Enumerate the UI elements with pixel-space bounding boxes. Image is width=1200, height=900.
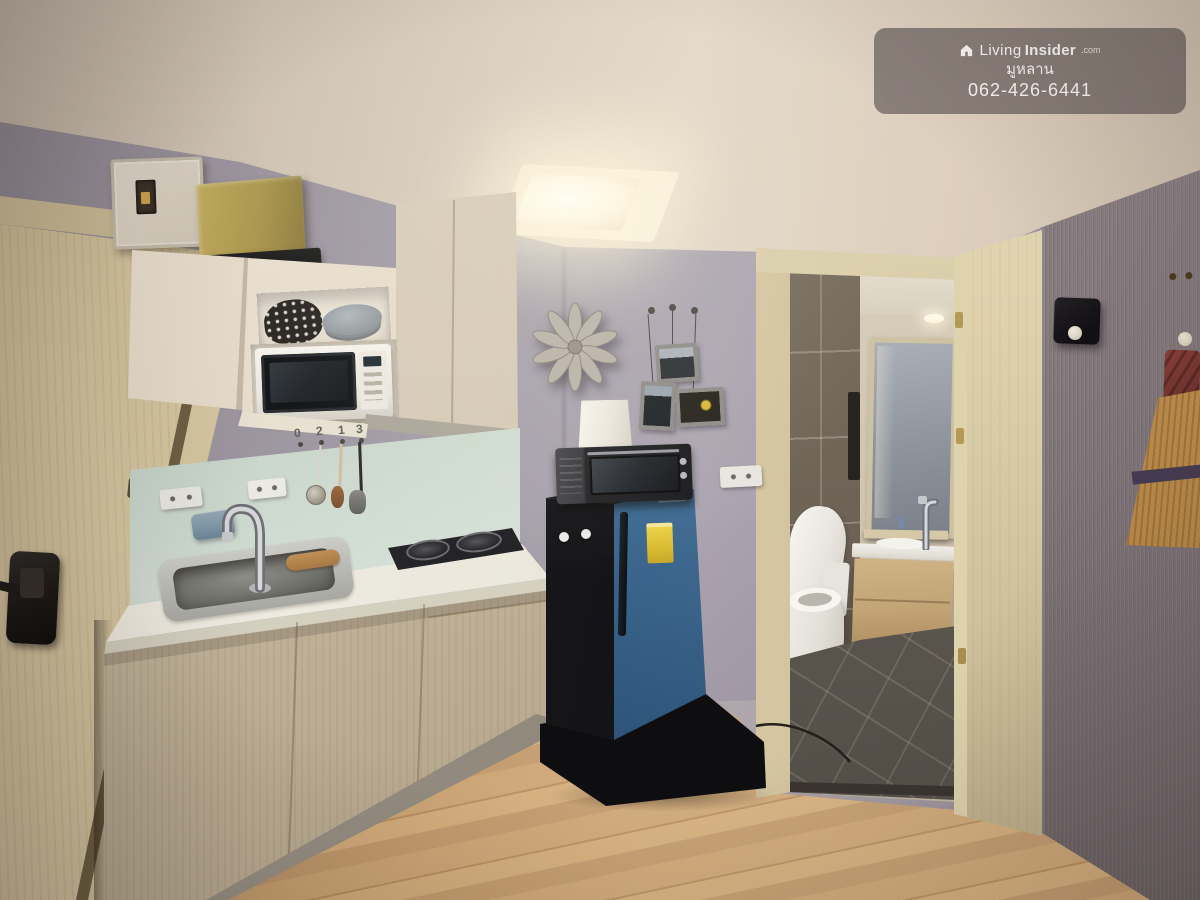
electrical-panel-indicator xyxy=(141,192,150,204)
vanity-sink xyxy=(876,537,926,550)
door-latch xyxy=(127,478,138,499)
toaster-oven xyxy=(555,444,693,505)
door-hinge-top xyxy=(955,312,963,328)
upper-cabinet-door-seam xyxy=(451,200,455,434)
frame-hook xyxy=(691,307,698,314)
room-photo: 0 2 1 3 xyxy=(0,0,1200,900)
fridge-floor-shadow xyxy=(548,778,778,812)
microwave-shelf xyxy=(251,339,400,426)
lamp-shade xyxy=(578,400,633,453)
broom-wrap xyxy=(1163,349,1200,400)
toaster-oven-window xyxy=(589,454,680,495)
utensil-wood-spoon-head xyxy=(331,486,344,508)
bathroom-faucet-icon xyxy=(904,492,944,550)
power-outlet-middle xyxy=(247,477,287,500)
wall-hook-plate xyxy=(1053,297,1101,345)
toaster-oven-knob xyxy=(680,472,687,479)
power-outlet-right xyxy=(719,465,762,488)
toilet-tank xyxy=(820,561,850,617)
wall-corner-seam xyxy=(560,247,568,577)
picture-frame-left xyxy=(639,381,676,431)
cabinet-side-shadow xyxy=(94,620,112,900)
bathroom-shelf xyxy=(864,529,948,539)
plate-stack xyxy=(320,301,383,338)
fridge-energy-label xyxy=(646,523,673,564)
base-cabinet-seam-2 xyxy=(417,604,425,782)
electrical-panel xyxy=(110,156,205,249)
bathroom-ceiling xyxy=(784,260,965,315)
utensil-hook xyxy=(340,439,345,444)
microwave-control-panel xyxy=(359,351,388,410)
door-lock xyxy=(6,551,61,645)
toilet-seat xyxy=(788,586,842,614)
picture-frame-right xyxy=(675,387,725,427)
watermark-brand-light: Living xyxy=(979,42,1021,59)
vanity-drawer-seam xyxy=(855,598,950,603)
frame-hook xyxy=(648,307,655,314)
hook-number: 0 xyxy=(293,426,301,441)
door-hinge-bottom xyxy=(958,648,966,664)
sink xyxy=(157,535,356,623)
bathroom-tile-wall xyxy=(784,268,860,738)
hook-number: 1 xyxy=(337,423,345,438)
vanity-cabinet xyxy=(851,558,953,649)
bathroom-threshold xyxy=(784,782,956,796)
cutting-board xyxy=(285,548,341,571)
dvd-player-display xyxy=(296,261,317,275)
bathroom-tile-grout-v xyxy=(820,268,822,738)
utensil-ladle-handle xyxy=(316,445,321,489)
storage-box xyxy=(196,175,306,270)
toilet-bowl xyxy=(786,586,844,686)
utensil-wood-spoon-handle xyxy=(338,444,343,490)
soap-dish xyxy=(190,509,235,541)
toaster-oven-handle xyxy=(587,449,679,455)
picture-frame-top xyxy=(655,343,700,384)
utensil-hook xyxy=(298,442,303,447)
utensil-hook xyxy=(319,440,324,445)
frame-wire xyxy=(672,311,673,347)
hook-number: 2 xyxy=(315,424,323,439)
microwave-window xyxy=(269,360,348,403)
ceiling-light xyxy=(513,173,641,231)
door-latch-hook xyxy=(134,493,158,525)
shelf-bottle xyxy=(898,516,905,529)
door-hinge-middle xyxy=(956,428,964,444)
stove-burner-right xyxy=(455,529,503,555)
utensil-hook xyxy=(359,438,364,443)
starburst-wall-clock xyxy=(530,302,620,392)
frame-hook xyxy=(669,304,676,311)
vanity-countertop xyxy=(852,543,954,561)
right-wall-corner-highlight xyxy=(1040,228,1046,868)
door-lock-keypad xyxy=(20,568,44,598)
broom-bead xyxy=(1178,332,1192,346)
electrical-panel-window xyxy=(135,180,156,215)
bathroom-wall-niche xyxy=(848,392,860,480)
power-outlet-left xyxy=(159,486,203,510)
microwave-buttons xyxy=(364,372,383,401)
house-icon xyxy=(959,43,974,58)
watermark-line2: มูหลาน xyxy=(1006,60,1054,79)
faucet-icon xyxy=(208,494,278,594)
broom-handle-block xyxy=(1158,261,1200,323)
microwave-display xyxy=(363,356,381,367)
toilet-seat-opening xyxy=(798,592,833,607)
hook-number: 3 xyxy=(355,422,363,437)
wire-basket xyxy=(262,296,325,347)
ceiling-light-recess xyxy=(496,164,679,242)
fridge-magnet-2 xyxy=(581,529,591,539)
utensil-turner-head xyxy=(349,490,366,514)
utensil-turner-handle xyxy=(358,442,363,492)
microwave-door xyxy=(261,352,357,413)
frame-wire xyxy=(648,314,654,384)
bathroom-ceiling-light xyxy=(924,314,944,323)
toaster-oven-vents xyxy=(559,457,582,494)
watermark: LivingInsider.com มูหลาน 062-426-6441 xyxy=(874,28,1186,114)
watermark-brand-suffix: .com xyxy=(1081,42,1101,59)
sink-basin xyxy=(172,547,336,611)
stove-burner-left xyxy=(405,537,451,563)
fridge-handle xyxy=(618,512,628,636)
utensil-ladle-head xyxy=(306,485,326,505)
microwave xyxy=(255,344,393,423)
watermark-line3: 062-426-6441 xyxy=(968,80,1092,100)
bathroom-mirror xyxy=(866,337,957,539)
toilet-lid xyxy=(781,503,850,608)
dvd-player-tray xyxy=(202,261,298,277)
wall-hook-knob xyxy=(1068,326,1082,340)
base-cabinet-drawer-seam xyxy=(428,600,547,619)
watermark-brand-bold: Insider xyxy=(1025,42,1076,59)
toaster-oven-knob xyxy=(679,458,686,465)
door-lock-handle xyxy=(0,580,29,596)
fridge-magnet-1 xyxy=(559,532,569,542)
base-cabinet-seam-1 xyxy=(288,622,298,860)
bathroom-mirror-reflection xyxy=(875,346,896,518)
dvd-player xyxy=(191,248,323,297)
broom-band xyxy=(1132,464,1200,484)
frame-wire xyxy=(693,314,697,392)
